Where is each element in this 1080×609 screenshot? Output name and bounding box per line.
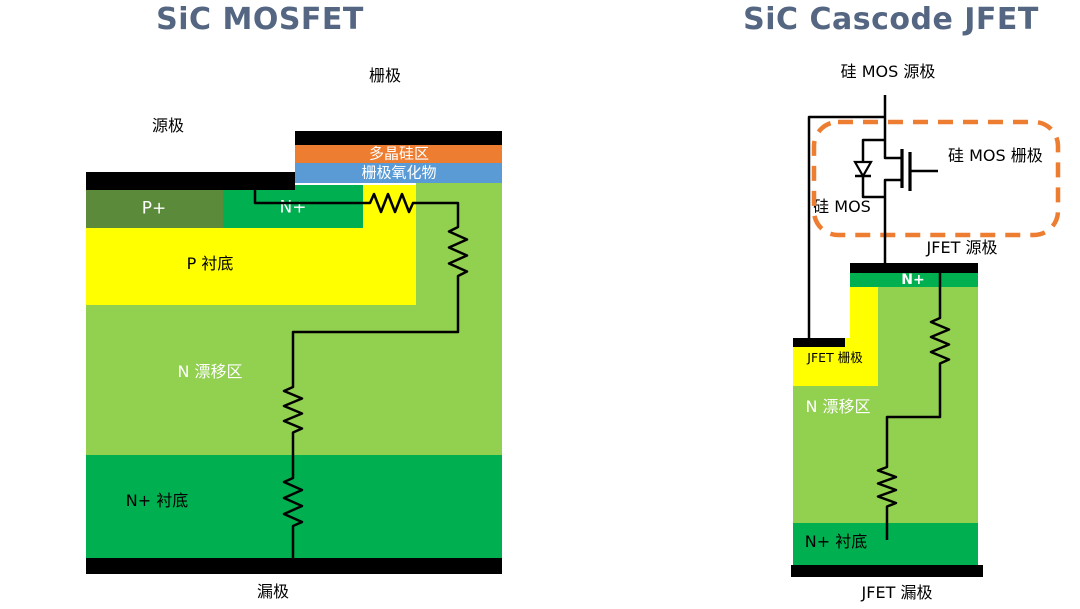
polysilicon-label: 多晶硅区 xyxy=(369,147,429,162)
n-drift-region xyxy=(86,305,502,455)
jfet-n-plus-substrate-label: N+ 衬底 xyxy=(805,534,867,550)
gate-oxide-label: 栅极氧化物 xyxy=(361,166,436,181)
n-drift-right-column xyxy=(416,183,502,305)
figure-canvas: SiC MOSFET 栅极 源极 漏极 多晶硅区 栅极氧化物 P+ N+ P 衬… xyxy=(0,0,1080,609)
drain-terminal-label: 漏极 xyxy=(257,584,289,600)
source-metal-bar xyxy=(86,172,295,190)
jfet-drain-label: JFET 漏极 xyxy=(862,585,933,601)
si-mos-label: 硅 MOS xyxy=(813,199,871,215)
n-drift-label: N 漂移区 xyxy=(177,364,242,380)
p-substrate-region xyxy=(86,228,416,305)
n-plus-substrate-label: N+ 衬底 xyxy=(126,493,188,509)
n-plus-label: N+ xyxy=(280,200,307,217)
right-title: SiC Cascode JFET xyxy=(743,2,1039,37)
source-terminal-label: 源极 xyxy=(152,118,184,134)
jfet-drain-metal-bar xyxy=(791,565,983,577)
jfet-gate-metal-bar xyxy=(793,338,845,347)
body-diode-icon xyxy=(855,162,871,176)
jfet-gate-label: JFET 栅极 xyxy=(807,352,862,365)
p-substrate-label: P 衬底 xyxy=(187,256,234,272)
drain-metal-bar xyxy=(86,558,502,574)
jfet-n-plus-label: N+ xyxy=(901,273,924,287)
p-substrate-top-strip xyxy=(363,185,416,228)
si-mos-gate-label: 硅 MOS 栅极 xyxy=(948,148,1043,164)
jfet-n-drift-label: N 漂移区 xyxy=(805,399,870,415)
gate-terminal-label: 栅极 xyxy=(369,68,401,84)
jfet-n-drift-upper xyxy=(878,287,978,386)
p-plus-label: P+ xyxy=(142,201,167,218)
left-title: SiC MOSFET xyxy=(156,2,364,37)
jfet-source-label: JFET 源极 xyxy=(927,240,998,256)
si-mos-source-label: 硅 MOS 源极 xyxy=(841,64,936,80)
gate-metal-bar xyxy=(295,131,502,145)
cascode-dashed-box xyxy=(814,122,1058,235)
